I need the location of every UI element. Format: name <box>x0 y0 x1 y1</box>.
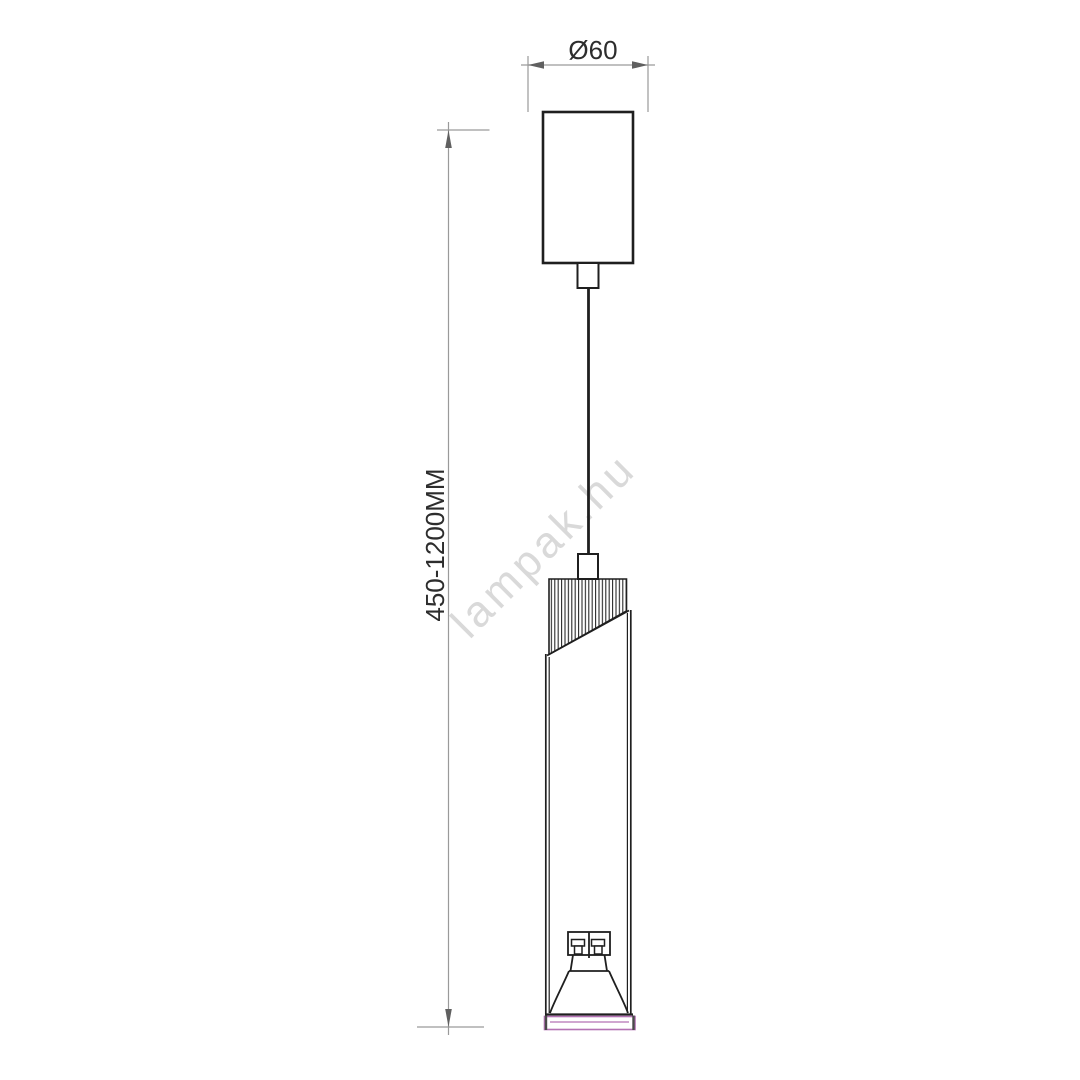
bulb-pin-right-stem <box>595 946 603 954</box>
bulb-bell-left <box>550 971 569 1013</box>
pendant-lamp-dimension-drawing: lampak.hu Ø60 450-1200MM <box>0 0 1080 1080</box>
ceiling-canopy <box>543 112 633 263</box>
arrow-right-icon <box>632 61 648 69</box>
bulb-bell-right <box>609 971 628 1013</box>
diameter-dimension: Ø60 <box>521 35 655 112</box>
gu10-bulb <box>550 932 628 1013</box>
bulb-neck-right <box>605 955 608 971</box>
top-connector <box>578 554 598 579</box>
cable-gland <box>578 263 599 288</box>
ribbed-collar <box>549 579 627 655</box>
bulb-neck-left <box>571 955 574 971</box>
arrow-down-icon <box>445 1009 452 1027</box>
bulb-pin-left-cap <box>572 940 585 947</box>
technical-drawing-canvas: lampak.hu Ø60 450-1200MM <box>0 0 1080 1080</box>
bottom-trim-ring <box>545 1016 636 1031</box>
arrow-up-icon <box>445 130 452 148</box>
bulb-pin-right-cap <box>592 940 605 947</box>
height-dimension-label: 450-1200MM <box>420 468 450 621</box>
pendant-lamp-figure <box>543 112 635 1030</box>
trim-ring-outline <box>545 1017 636 1030</box>
diameter-dimension-label: Ø60 <box>568 35 617 65</box>
bulb-pin-left-stem <box>575 946 583 954</box>
arrow-left-icon <box>528 61 544 69</box>
